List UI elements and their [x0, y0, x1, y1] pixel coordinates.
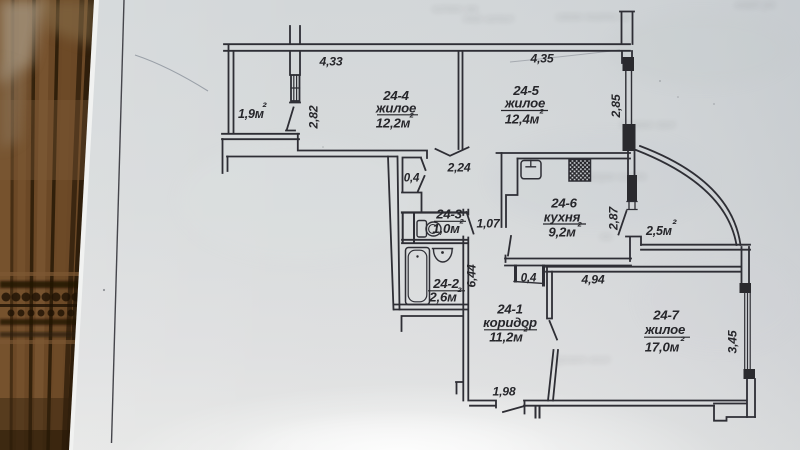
svg-text:3,45: 3,45 — [726, 330, 740, 353]
svg-text:12,2м: 12,2м — [376, 116, 411, 131]
svg-text:4,94: 4,94 — [581, 273, 605, 287]
svg-text:24-6: 24-6 — [550, 196, 577, 211]
svg-text:жилое: жилое — [644, 322, 685, 337]
svg-text:9,2м: 9,2м — [548, 225, 576, 240]
svg-text:иман ешто ш: иман ешто ш — [556, 11, 630, 23]
svg-text:пс: пс — [600, 231, 613, 243]
svg-text:17,0м: 17,0м — [645, 340, 680, 355]
svg-text:2,82: 2,82 — [307, 105, 321, 129]
svg-text:1,98: 1,98 — [493, 385, 516, 399]
svg-text:2,5м: 2,5м — [645, 224, 672, 238]
svg-text:коридор: коридор — [483, 315, 537, 330]
svg-text:24-7: 24-7 — [652, 308, 679, 323]
svg-text:апрм снлт: апрм снлт — [588, 171, 647, 183]
svg-text:2,87: 2,87 — [607, 206, 621, 231]
svg-text:навп рс: навп рс — [735, 0, 776, 11]
svg-text:1,07: 1,07 — [477, 217, 501, 231]
svg-text:нев шпал: нев шпал — [463, 13, 514, 25]
svg-text:2,24: 2,24 — [447, 161, 471, 175]
svg-text:11,2м: 11,2м — [489, 330, 523, 345]
svg-text:0,4: 0,4 — [404, 173, 420, 185]
svg-text:кухня: кухня — [544, 210, 581, 225]
svg-text:12,4м: 12,4м — [505, 112, 540, 127]
svg-text:0,4: 0,4 — [521, 273, 537, 285]
svg-text:2,85: 2,85 — [609, 94, 623, 118]
svg-text:4,35: 4,35 — [530, 52, 554, 66]
svg-text:4,33: 4,33 — [319, 55, 343, 69]
svg-text:6,44: 6,44 — [465, 264, 479, 287]
svg-text:1,0м: 1,0м — [432, 221, 460, 236]
svg-text:1,9м: 1,9м — [238, 107, 264, 121]
svg-text:2,6м: 2,6м — [428, 290, 457, 305]
svg-text:прокт мэл: прокт мэл — [552, 354, 610, 366]
